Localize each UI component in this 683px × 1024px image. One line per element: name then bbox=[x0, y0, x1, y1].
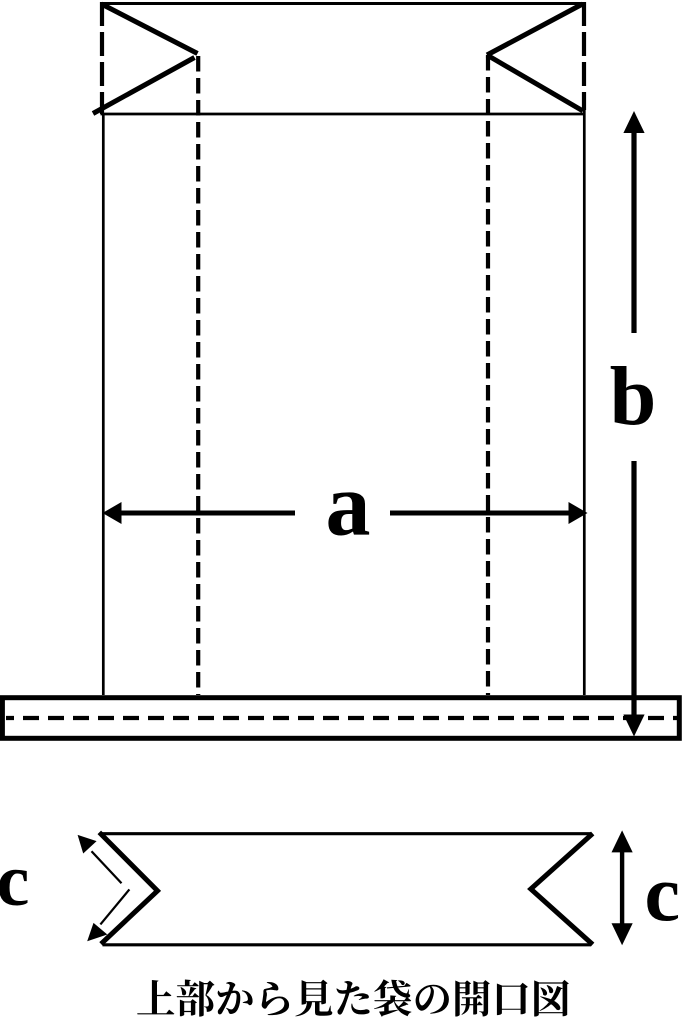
svg-text:a: a bbox=[326, 456, 371, 555]
svg-text:c: c bbox=[645, 851, 681, 939]
svg-text:b: b bbox=[610, 350, 657, 443]
svg-text:c: c bbox=[0, 840, 29, 922]
